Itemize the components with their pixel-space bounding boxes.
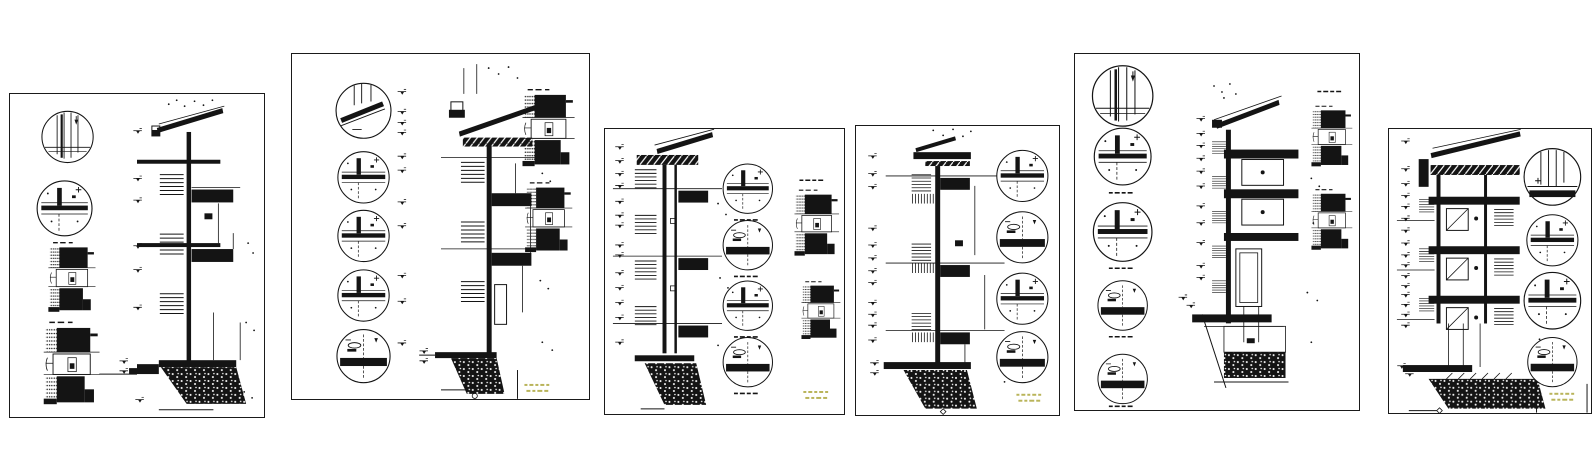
title-stamp [803, 391, 828, 399]
drawing-sheet-4[interactable] [855, 125, 1060, 416]
level-markers [1179, 116, 1205, 308]
detail-circles [1524, 149, 1581, 387]
detail-circle [338, 270, 389, 321]
detail-circle [336, 83, 391, 138]
detail-circle [42, 111, 93, 162]
hatched-plan-detail [525, 183, 572, 252]
detail-circle [337, 330, 390, 383]
title-stamp [1549, 393, 1574, 401]
level-markers [615, 144, 623, 345]
title-block [517, 370, 549, 399]
drawing-sheet-3[interactable] [604, 128, 845, 415]
detail-circles [723, 164, 772, 393]
hatched-plan-detail [48, 243, 95, 312]
drawing-sheet-1[interactable] [9, 93, 265, 418]
title-stamp [1016, 394, 1041, 402]
level-markers [868, 154, 878, 376]
title-stamp [524, 384, 549, 392]
level-markers [1397, 139, 1413, 377]
hatched-plan-detail [44, 322, 100, 404]
detail-circles [997, 150, 1048, 382]
drawing-sheet-2[interactable] [291, 53, 590, 400]
hatched-plan-detail [1311, 190, 1352, 250]
hatched-plan-detail [1311, 106, 1352, 166]
level-markers [398, 89, 428, 364]
wall-section [613, 129, 729, 409]
detail-circle [338, 152, 389, 203]
drawing-canvas [0, 0, 1595, 475]
drawing-sheet-5[interactable] [1074, 53, 1360, 411]
hatched-plan-detail [522, 90, 574, 166]
wall-section [1192, 83, 1320, 388]
hatched-plan-detail [794, 190, 839, 255]
level-markers [119, 128, 143, 402]
detail-circles [1092, 66, 1152, 407]
hatched-plan-detail [801, 282, 840, 339]
drawing-sheet-6[interactable] [1388, 128, 1592, 414]
detail-circle [338, 210, 389, 261]
wall-section [99, 99, 255, 409]
detail-circle [37, 181, 92, 236]
